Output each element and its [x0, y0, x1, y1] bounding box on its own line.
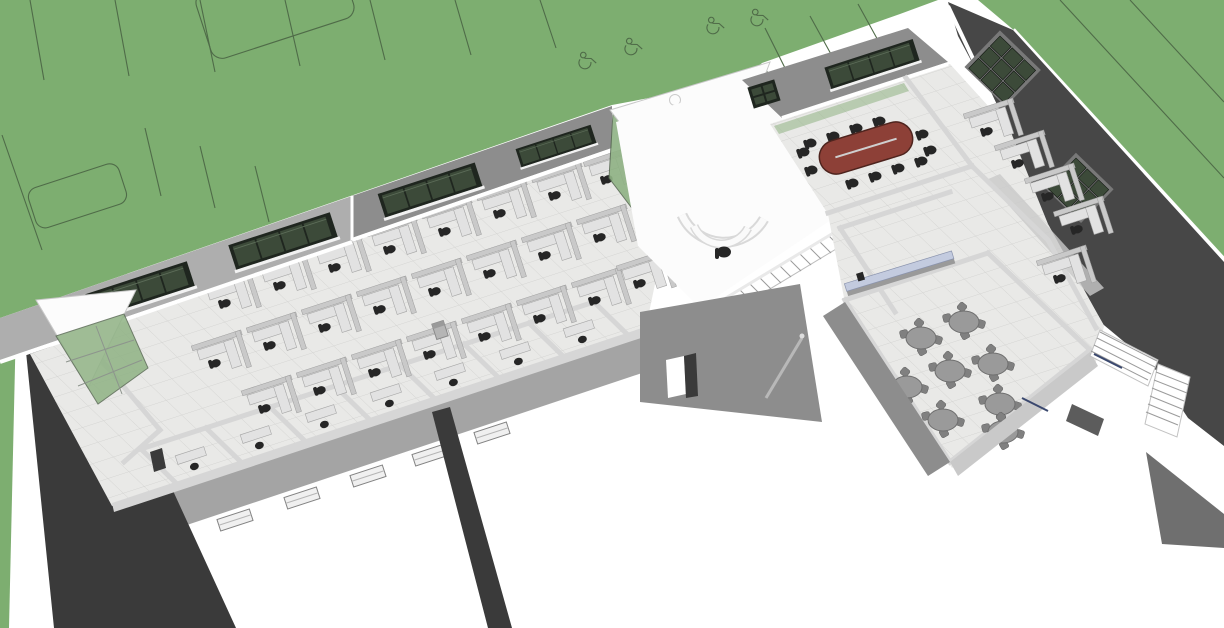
handrail-cap: [800, 334, 805, 339]
lawn-west-strip: [0, 318, 16, 628]
lower-terrace-wall: [1146, 452, 1224, 548]
scene-canvas: [0, 0, 1224, 628]
door-opening: [666, 356, 686, 398]
wall-fin: [1066, 404, 1104, 436]
lobby-south-wall: [640, 284, 822, 422]
render-viewport: [0, 0, 1224, 628]
door-leaf: [684, 353, 698, 398]
projecting-wall-fin: [432, 407, 512, 628]
